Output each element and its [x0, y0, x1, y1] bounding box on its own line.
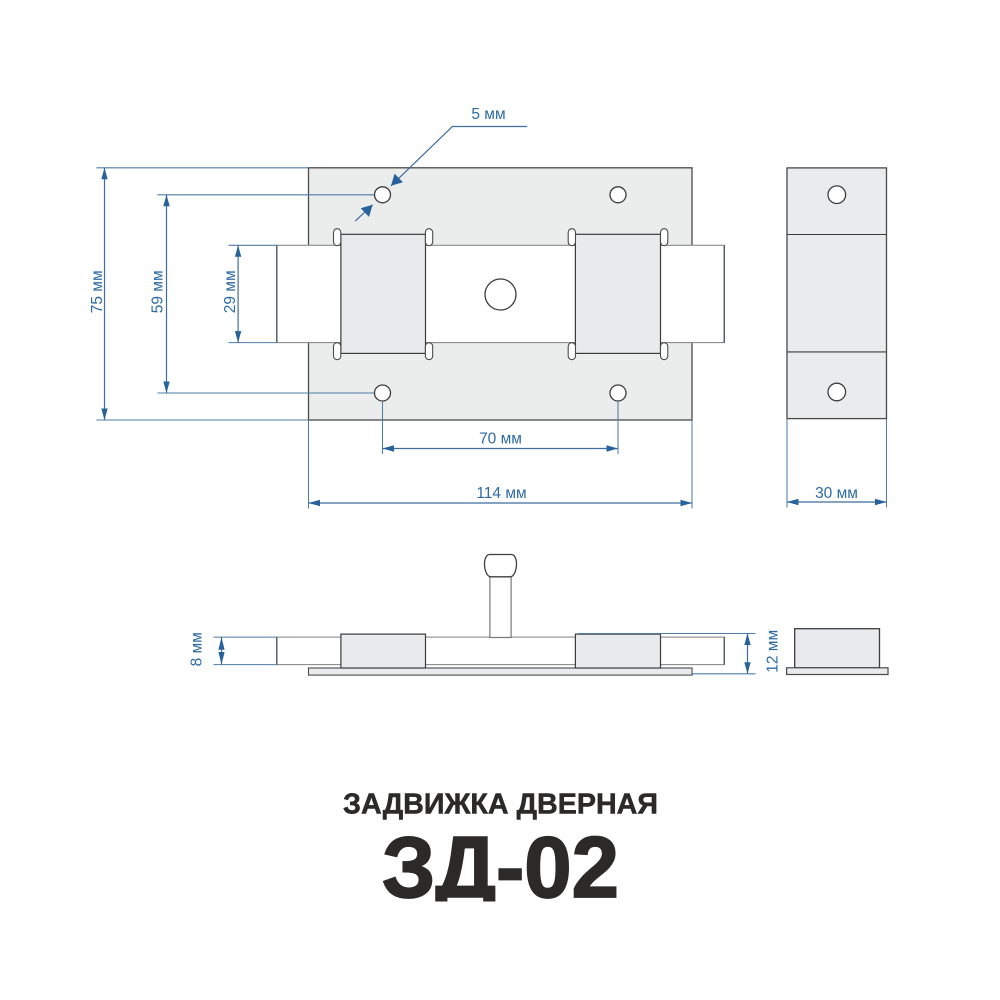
svg-text:12 мм: 12 мм: [765, 630, 782, 673]
svg-text:114 мм: 114 мм: [476, 485, 526, 502]
svg-text:5 мм: 5 мм: [471, 106, 505, 123]
svg-text:75 мм: 75 мм: [89, 270, 106, 313]
svg-text:30 мм: 30 мм: [815, 485, 858, 502]
svg-text:29 мм: 29 мм: [222, 270, 239, 313]
svg-text:59 мм: 59 мм: [150, 270, 167, 313]
svg-text:70 мм: 70 мм: [479, 431, 522, 448]
svg-text:ЗАДВИЖКА ДВЕРНАЯ: ЗАДВИЖКА ДВЕРНАЯ: [343, 789, 658, 821]
svg-text:8 мм: 8 мм: [189, 632, 206, 666]
